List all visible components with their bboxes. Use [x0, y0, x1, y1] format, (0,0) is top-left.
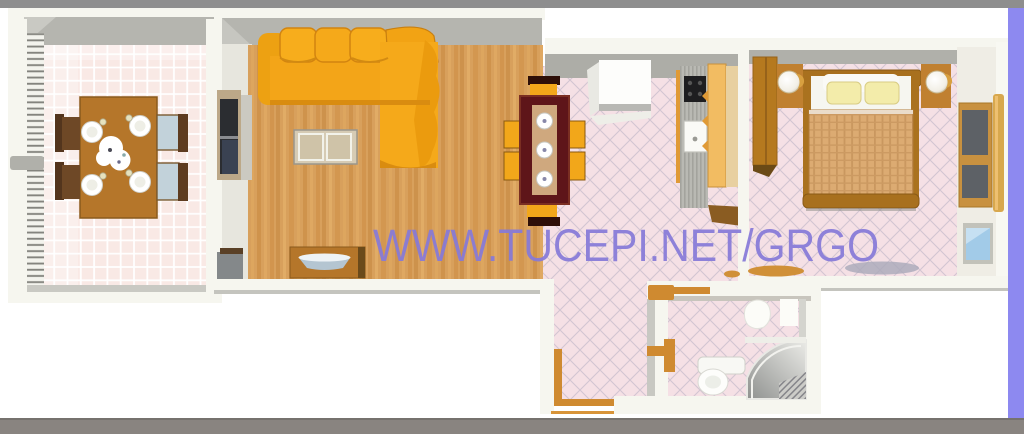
svg-text:WWW.TUCEPI.NET/GRGO: WWW.TUCEPI.NET/GRGO — [373, 220, 879, 271]
